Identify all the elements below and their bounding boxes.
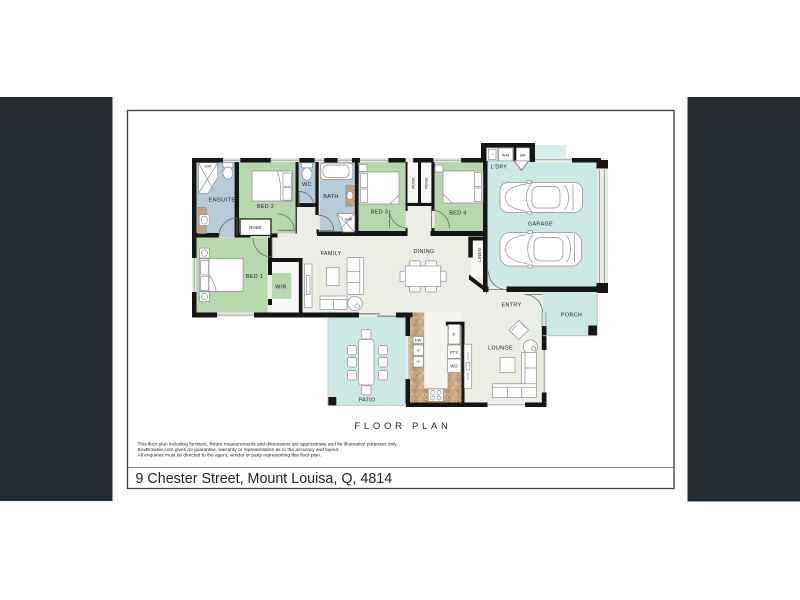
- svg-text:WM: WM: [502, 153, 509, 158]
- svg-text:ROBE: ROBE: [411, 177, 416, 189]
- svg-text:BoxBrownie.com gives no guaran: BoxBrownie.com gives no guarantee, warra…: [138, 447, 340, 453]
- svg-text:WO: WO: [450, 364, 458, 369]
- svg-text:BATH: BATH: [323, 194, 338, 200]
- svg-text:WC: WC: [302, 182, 312, 188]
- svg-text:PTY: PTY: [450, 350, 459, 355]
- svg-text:BED 3: BED 3: [371, 210, 388, 216]
- svg-text:BED 4: BED 4: [449, 211, 466, 217]
- svg-text:FLOOR PLAN: FLOOR PLAN: [354, 421, 451, 432]
- svg-text:9 Chester Street, Mount Louisa: 9 Chester Street, Mount Louisa, Q, 4814: [136, 471, 393, 487]
- svg-text:DW: DW: [415, 338, 422, 343]
- svg-text:ROBE: ROBE: [424, 177, 429, 189]
- svg-text:LOUNGE: LOUNGE: [488, 346, 513, 352]
- svg-text:WIR: WIR: [275, 285, 287, 291]
- svg-text:ENSUITE: ENSUITE: [208, 197, 235, 203]
- svg-text:FAMILY: FAMILY: [321, 251, 342, 257]
- svg-text:ENTRY: ENTRY: [502, 303, 522, 309]
- svg-text:PATIO: PATIO: [358, 398, 375, 404]
- svg-text:ROBE: ROBE: [249, 225, 262, 230]
- svg-text:SHR: SHR: [345, 218, 353, 222]
- svg-text:PORCH: PORCH: [561, 313, 582, 319]
- svg-text:GARAGE: GARAGE: [528, 222, 553, 228]
- svg-text:DINING: DINING: [414, 249, 435, 255]
- svg-text:LINEN: LINEN: [477, 248, 482, 261]
- svg-text:BED 1: BED 1: [246, 274, 263, 280]
- svg-text:BED 2: BED 2: [257, 204, 274, 210]
- svg-text:F: F: [453, 332, 456, 337]
- svg-text:This floor plan including furn: This floor plan including furniture, fix…: [138, 442, 398, 448]
- svg-text:All enquiries must be directed: All enquiries must be directed to the ag…: [138, 453, 322, 459]
- svg-text:SHR: SHR: [204, 165, 212, 169]
- svg-text:L'DRY: L'DRY: [491, 165, 508, 171]
- svg-text:BR: BR: [520, 153, 526, 158]
